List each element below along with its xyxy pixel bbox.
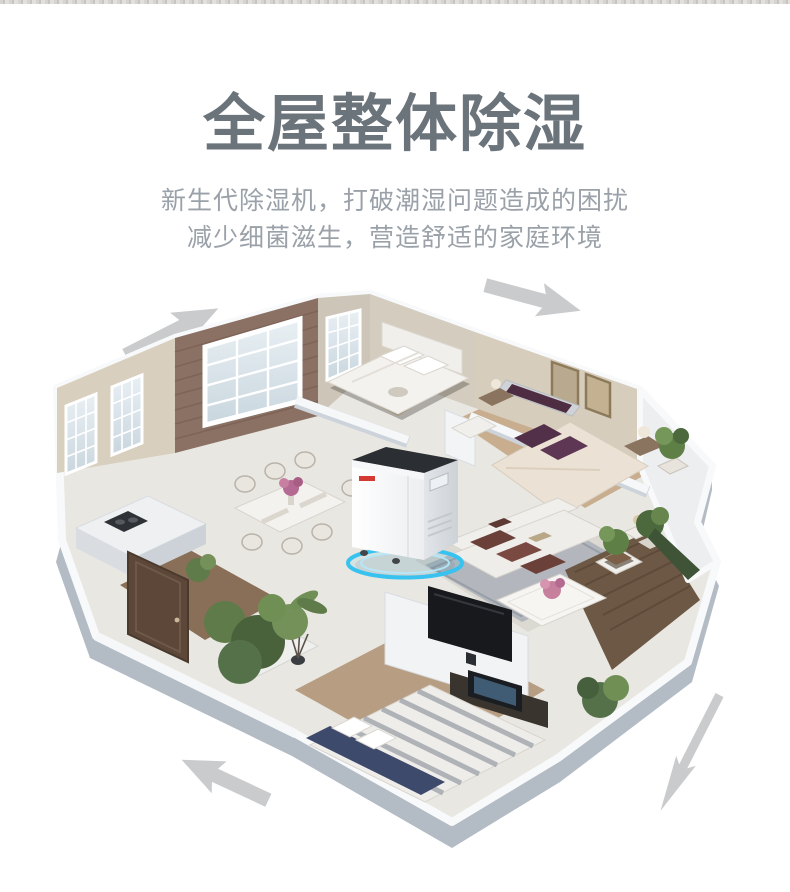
subtitle-line-1: 新生代除湿机，打破潮湿问题造成的困扰: [0, 186, 790, 216]
bed-tray: [388, 387, 408, 397]
bay-plant: [655, 427, 689, 474]
lamp-left: [491, 379, 501, 389]
lamp-right: [638, 426, 650, 438]
subtitle-line-2: 减少细菌滋生，营造舒适的家庭环境: [0, 223, 790, 253]
door-handle: [175, 618, 180, 623]
house-illustration: [0, 270, 790, 892]
dehumidifier: [348, 447, 462, 578]
marketing-page: 全屋整体除湿 新生代除湿机，打破潮湿问题造成的困扰 减少细菌滋生，营造舒适的家庭…: [0, 0, 790, 892]
page-title: 全屋整体除湿: [0, 88, 790, 162]
page-top-divider: [0, 0, 790, 4]
product-logo: [359, 476, 375, 481]
airflow-arrow-bottom-right-icon: [651, 690, 730, 816]
airflow-arrow-top-right-icon: [481, 270, 585, 327]
airflow-arrow-bottom-left-icon: [174, 744, 276, 816]
